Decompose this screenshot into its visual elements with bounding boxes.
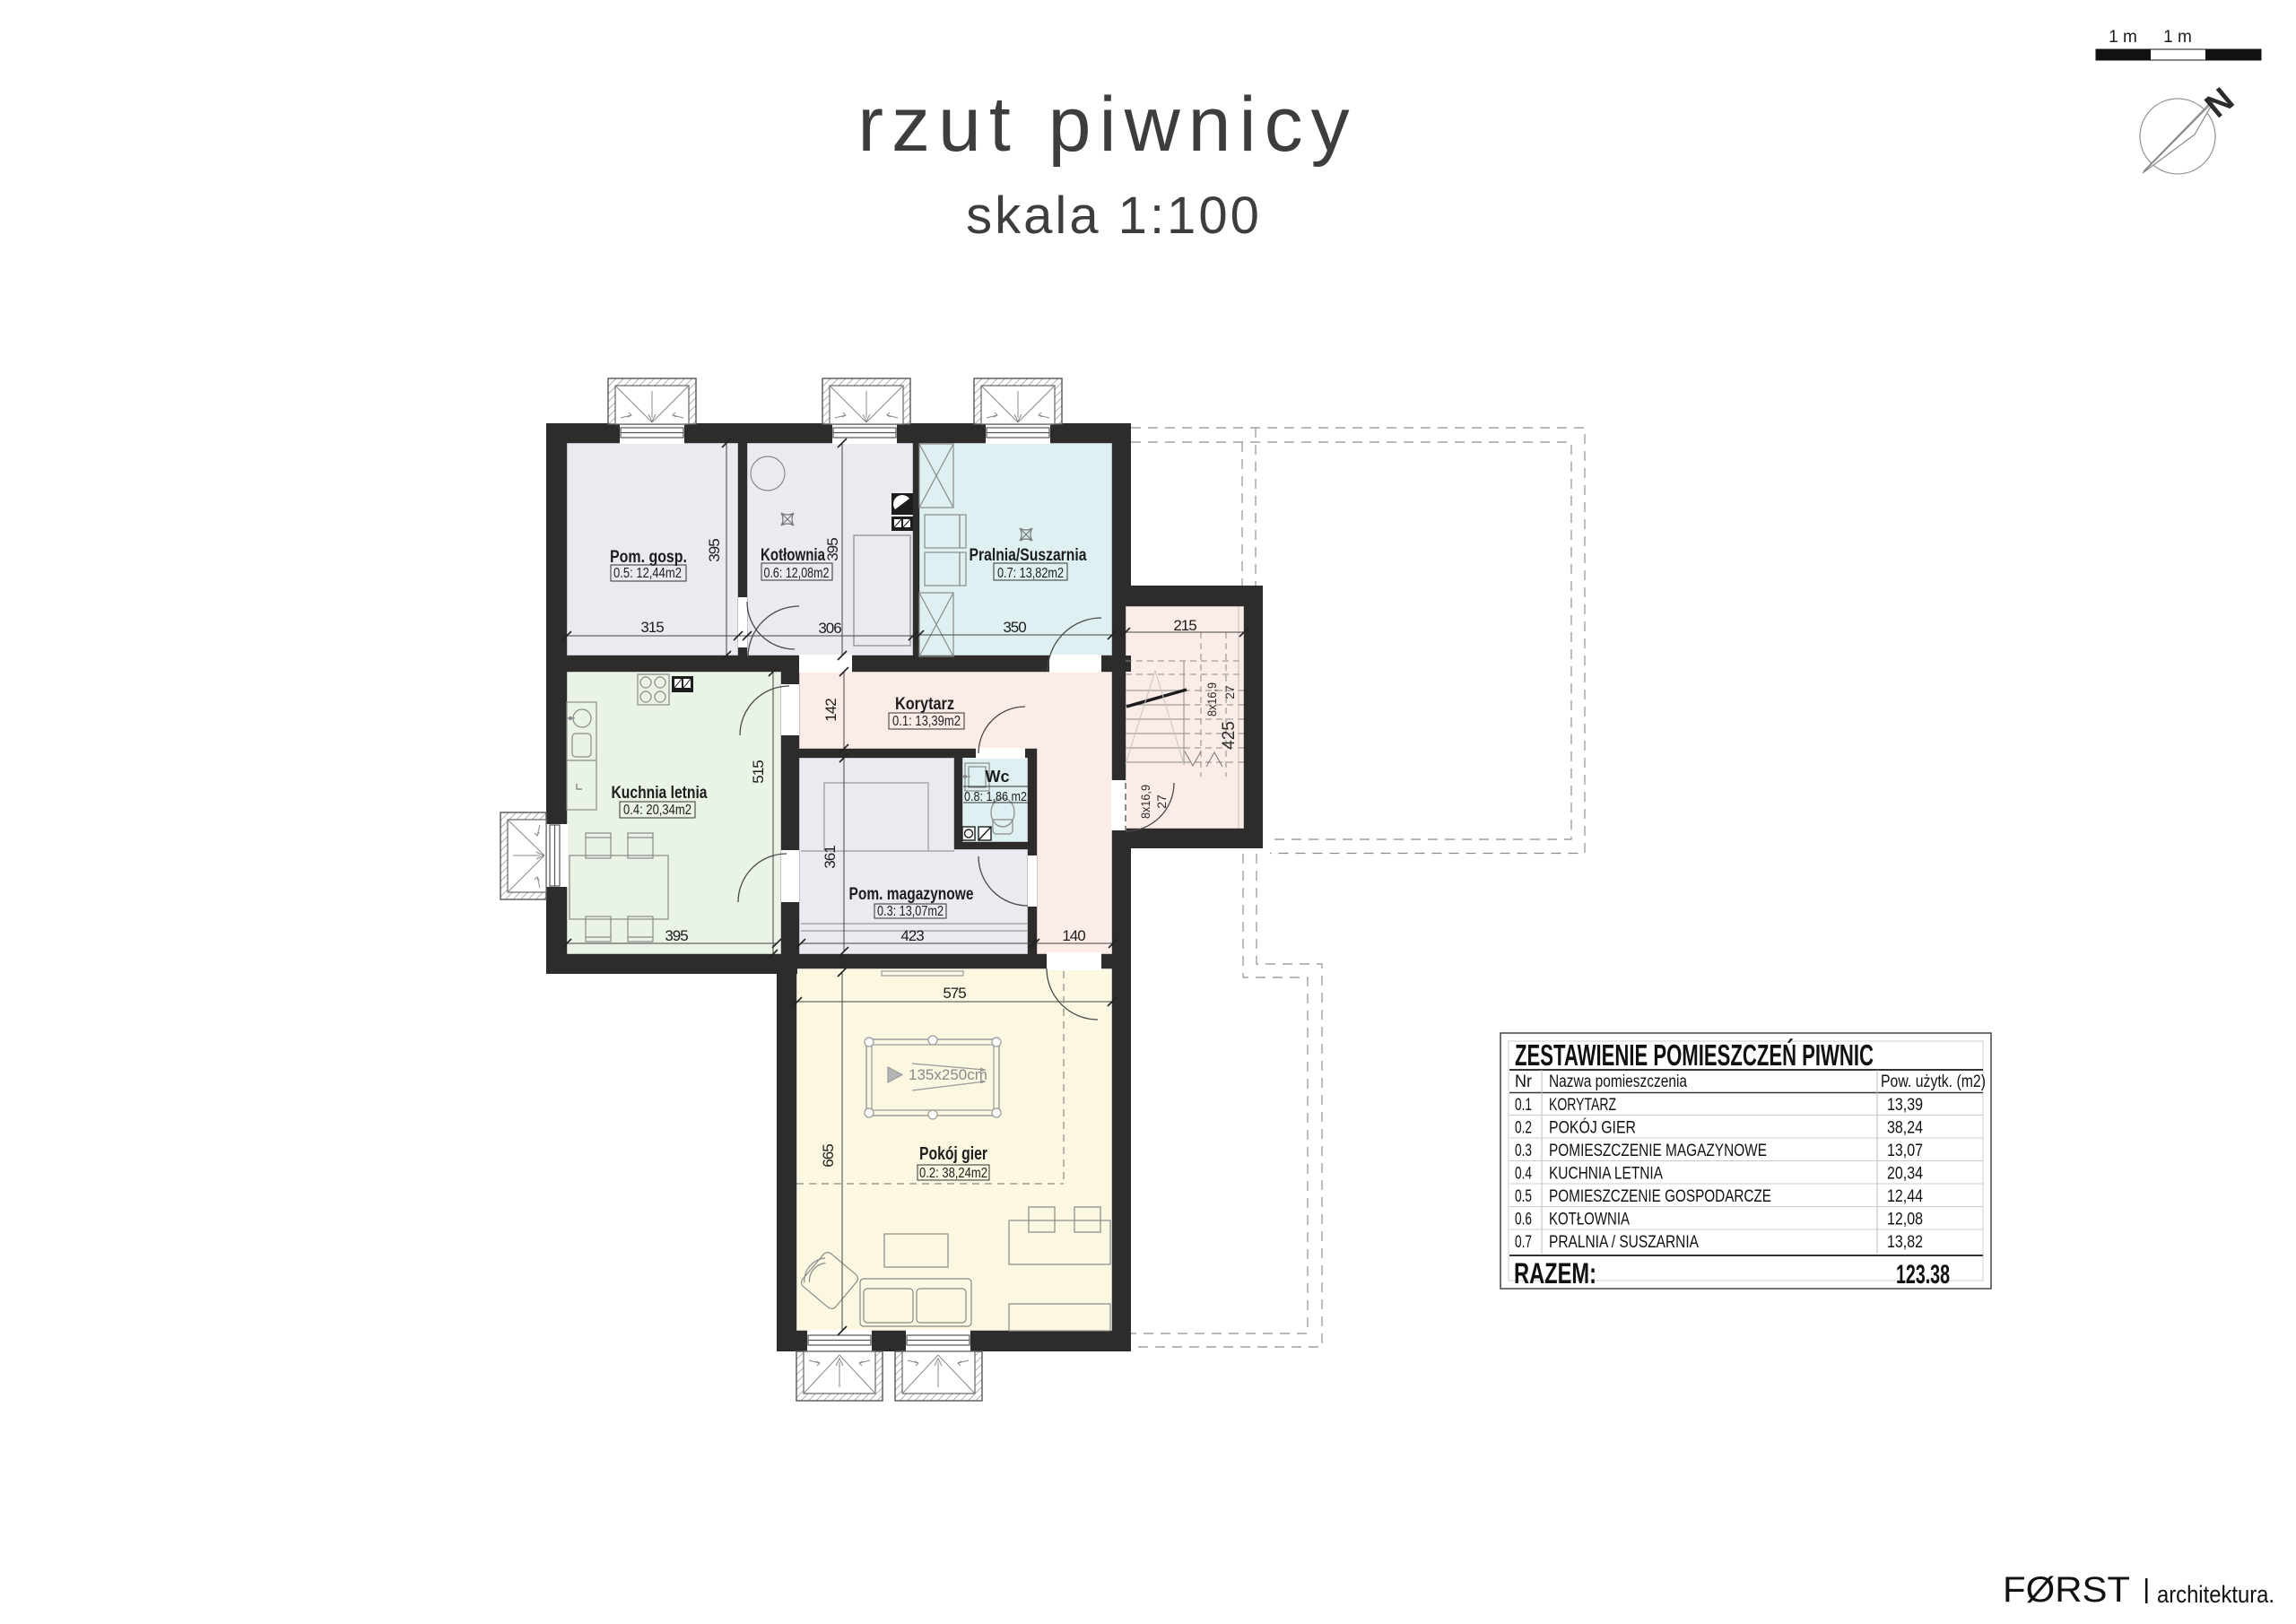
svg-text:0.1: 0.1 xyxy=(1515,1096,1532,1115)
svg-text:142: 142 xyxy=(822,699,839,722)
svg-text:1 m: 1 m xyxy=(2163,28,2192,47)
svg-text:315: 315 xyxy=(640,619,664,636)
svg-text:395: 395 xyxy=(706,539,723,562)
svg-text:PRALNIA / SUSZARNIA: PRALNIA / SUSZARNIA xyxy=(1549,1233,1699,1252)
svg-text:0.7: 13,82m2: 0.7: 13,82m2 xyxy=(997,566,1064,581)
svg-text:12,08: 12,08 xyxy=(1887,1211,1923,1229)
svg-text:0.6: 12,08m2: 0.6: 12,08m2 xyxy=(764,566,830,581)
svg-text:27: 27 xyxy=(1222,685,1237,699)
svg-text:Korytarz: Korytarz xyxy=(895,695,954,714)
svg-text:Kuchnia letnia: Kuchnia letnia xyxy=(612,784,708,803)
svg-text:skala 1:100: skala 1:100 xyxy=(966,187,1262,245)
svg-text:515: 515 xyxy=(750,760,767,784)
svg-text:0.2: 38,24m2: 0.2: 38,24m2 xyxy=(919,1166,987,1181)
svg-text:0.6: 0.6 xyxy=(1515,1211,1532,1229)
svg-text:215: 215 xyxy=(1173,617,1196,634)
svg-text:13,39: 13,39 xyxy=(1887,1096,1923,1115)
svg-text:395: 395 xyxy=(824,538,841,561)
svg-text:0.3: 13,07m2: 0.3: 13,07m2 xyxy=(877,904,944,919)
svg-text:Pralnia/Suszarnia: Pralnia/Suszarnia xyxy=(970,546,1087,565)
svg-text:575: 575 xyxy=(943,985,966,1002)
svg-text:361: 361 xyxy=(822,846,839,869)
svg-text:POMIESZCZENIE GOSPODARCZE: POMIESZCZENIE GOSPODARCZE xyxy=(1549,1187,1771,1206)
svg-text:Pow. użytk. (m2): Pow. użytk. (m2) xyxy=(1881,1073,1986,1091)
svg-text:0.4: 0.4 xyxy=(1515,1165,1532,1184)
svg-text:1 m: 1 m xyxy=(2109,28,2137,47)
svg-text:12,44: 12,44 xyxy=(1887,1187,1923,1206)
svg-text:architektura.: architektura. xyxy=(2157,1581,2274,1608)
svg-text:0.2: 0.2 xyxy=(1515,1119,1532,1138)
svg-text:27: 27 xyxy=(1154,795,1169,809)
svg-text:135x250cm: 135x250cm xyxy=(909,1066,987,1083)
svg-text:Nazwa pomieszczenia: Nazwa pomieszczenia xyxy=(1549,1073,1687,1091)
svg-text:POMIESZCZENIE MAGAZYNOWE: POMIESZCZENIE MAGAZYNOWE xyxy=(1549,1142,1767,1160)
svg-text:N: N xyxy=(2198,81,2241,126)
svg-text:140: 140 xyxy=(1062,927,1085,944)
svg-text:0.5: 0.5 xyxy=(1515,1187,1532,1206)
svg-text:Pom. magazynowe: Pom. magazynowe xyxy=(849,885,974,904)
svg-text:0.3: 0.3 xyxy=(1515,1142,1532,1160)
svg-text:RAZEM:: RAZEM: xyxy=(1514,1257,1596,1290)
svg-text:0.4: 20,34m2: 0.4: 20,34m2 xyxy=(623,803,691,818)
svg-text:Kotłownia: Kotłownia xyxy=(761,546,825,565)
svg-text:0.8: 1,86 m2: 0.8: 1,86 m2 xyxy=(964,789,1027,804)
svg-text:350: 350 xyxy=(1003,619,1026,636)
svg-text:Nr: Nr xyxy=(1515,1073,1533,1091)
svg-text:20,34: 20,34 xyxy=(1887,1165,1923,1184)
svg-text:38,24: 38,24 xyxy=(1887,1119,1923,1138)
svg-text:13,07: 13,07 xyxy=(1887,1142,1923,1160)
svg-text:8x16,9: 8x16,9 xyxy=(1138,785,1152,819)
svg-text:306: 306 xyxy=(818,620,841,637)
svg-text:Wc: Wc xyxy=(986,768,1010,786)
svg-text:0.7: 0.7 xyxy=(1515,1233,1532,1252)
svg-text:8x16,9: 8x16,9 xyxy=(1205,682,1219,716)
svg-text:KORYTARZ: KORYTARZ xyxy=(1549,1096,1616,1115)
svg-text:665: 665 xyxy=(820,1144,837,1168)
svg-text:KOTŁOWNIA: KOTŁOWNIA xyxy=(1549,1211,1630,1229)
svg-text:395: 395 xyxy=(665,927,688,944)
svg-text:Pom. gosp.: Pom. gosp. xyxy=(610,548,687,567)
svg-text:KUCHNIA LETNIA: KUCHNIA LETNIA xyxy=(1549,1165,1663,1184)
svg-text:0.5: 12,44m2: 0.5: 12,44m2 xyxy=(613,566,682,581)
svg-text:rzut piwnicy: rzut piwnicy xyxy=(857,82,1357,168)
svg-text:FØRST: FØRST xyxy=(2003,1570,2130,1610)
svg-text:POKÓJ GIER: POKÓJ GIER xyxy=(1549,1118,1636,1138)
svg-text:425: 425 xyxy=(1220,721,1239,750)
svg-text:423: 423 xyxy=(900,927,924,944)
svg-text:Pokój gier: Pokój gier xyxy=(919,1144,987,1164)
svg-text:0.1: 13,39m2: 0.1: 13,39m2 xyxy=(892,714,961,729)
svg-text:ZESTAWIENIE POMIESZCZEŃ PIWNIC: ZESTAWIENIE POMIESZCZEŃ PIWNIC xyxy=(1515,1038,1874,1072)
svg-text:13,82: 13,82 xyxy=(1887,1233,1923,1252)
svg-text:123.38: 123.38 xyxy=(1896,1260,1950,1290)
